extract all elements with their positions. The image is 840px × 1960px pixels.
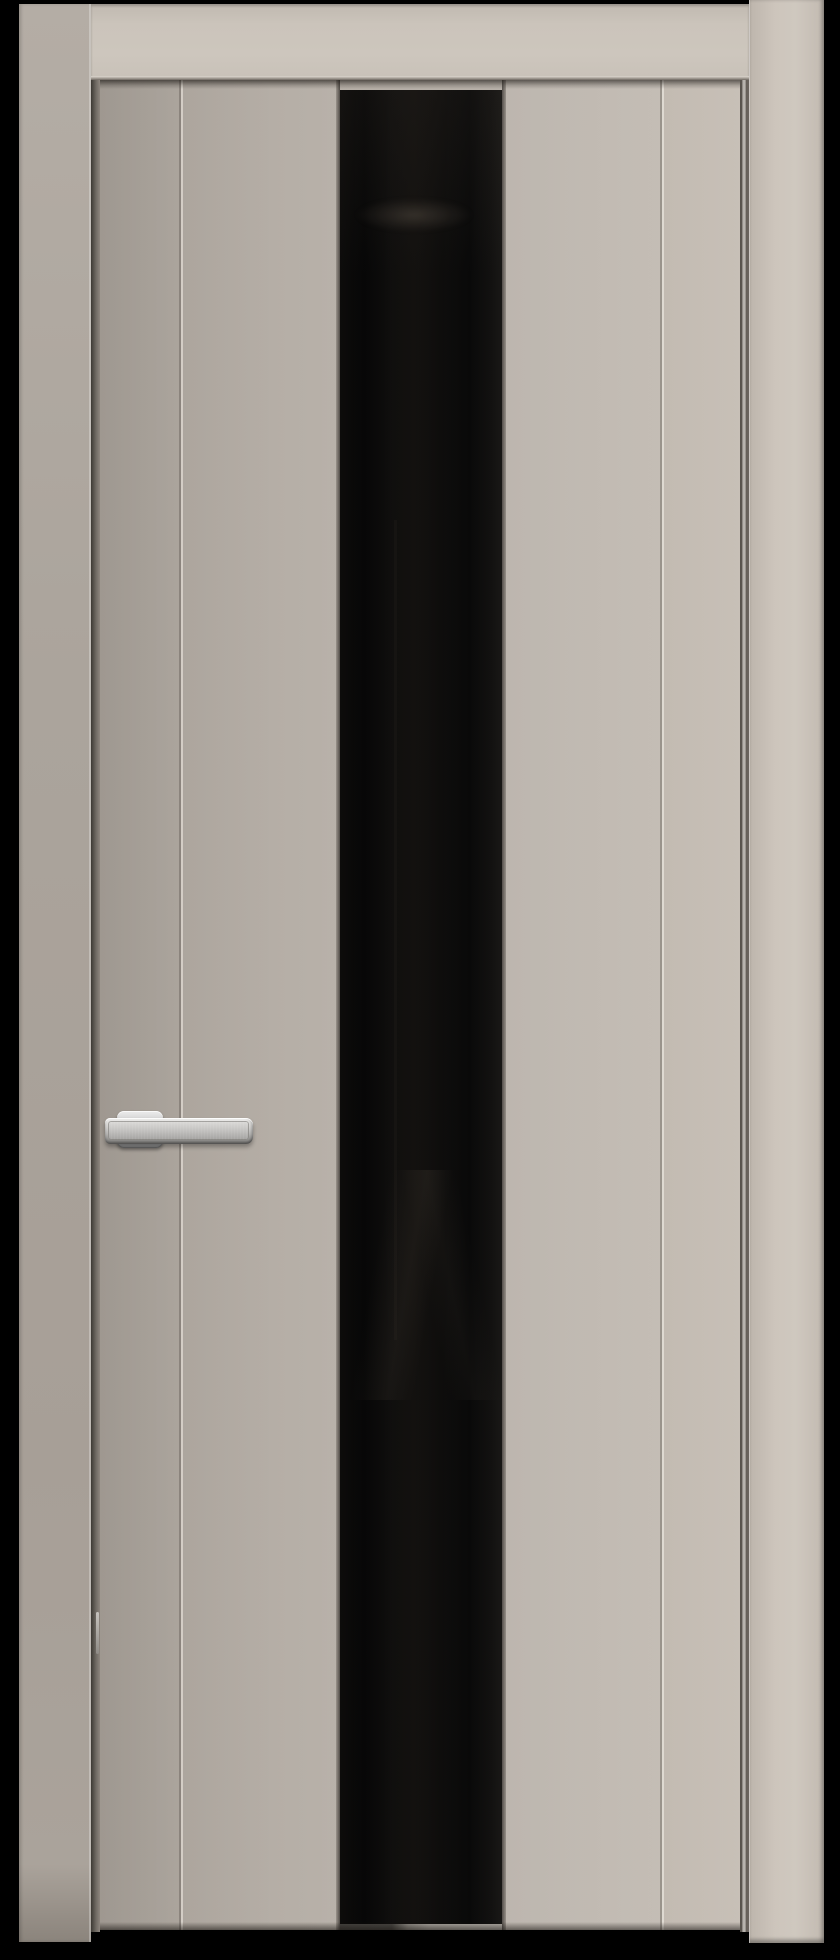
glass-diagonal-reflection	[340, 1170, 502, 1400]
frame-left-casing	[19, 4, 91, 1942]
leaf-top-shadow	[100, 80, 740, 89]
leaf-right-panel	[506, 80, 660, 1930]
jamb-silver-strip	[742, 80, 746, 1932]
leaf-right-stile	[664, 80, 740, 1930]
door-leaf	[100, 80, 740, 1930]
leaf-bottom-shadow	[100, 1922, 740, 1930]
door-product-photo	[0, 0, 840, 1960]
glass-ceiling-reflection	[355, 198, 473, 232]
leaf-left-stile	[100, 80, 179, 1930]
leaf-left-panel	[183, 80, 336, 1930]
black-glass-insert	[340, 90, 502, 1924]
leaf-frame-gap-left	[91, 80, 100, 1932]
latch-plate-glint	[96, 1612, 99, 1654]
frame-right-casing	[749, 0, 824, 1943]
lever-handle	[105, 1118, 253, 1144]
lever-handle-face	[108, 1121, 249, 1140]
frame-top-rail	[91, 4, 749, 76]
